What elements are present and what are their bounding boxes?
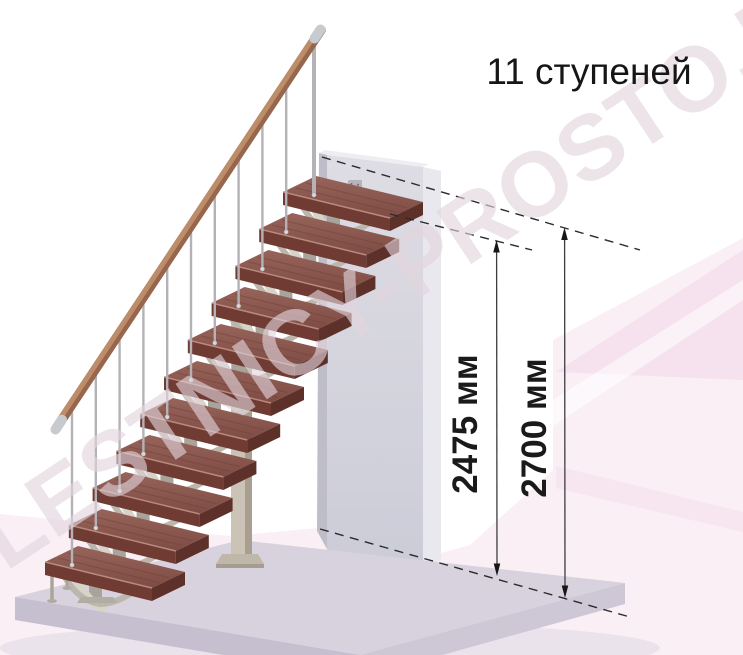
handrail-top-cap [315, 30, 321, 39]
leg-foot [47, 599, 57, 603]
baluster-foot [312, 193, 316, 197]
baluster-foot [284, 230, 288, 234]
leg-foot [63, 586, 72, 590]
baluster-foot [236, 304, 240, 308]
staircase-diagram: 2475 мм 2700 мм LESTNICY-PROSTO.RU 11 ст… [0, 0, 743, 655]
arrow-up-icon [561, 228, 568, 241]
page-title: 11 ступеней [486, 51, 691, 92]
dimension-label-2700: 2700 мм [515, 358, 554, 497]
step-11 [283, 38, 423, 240]
dimension-label-2475: 2475 мм [446, 354, 485, 493]
staircase-illustration: 2475 мм 2700 мм LESTNICY-PROSTO.RU 11 ст… [0, 0, 743, 655]
support-base-plate [77, 597, 117, 603]
handrail-bottom-cap [56, 420, 63, 430]
baluster-foot [260, 267, 264, 271]
baluster-foot [70, 563, 74, 567]
